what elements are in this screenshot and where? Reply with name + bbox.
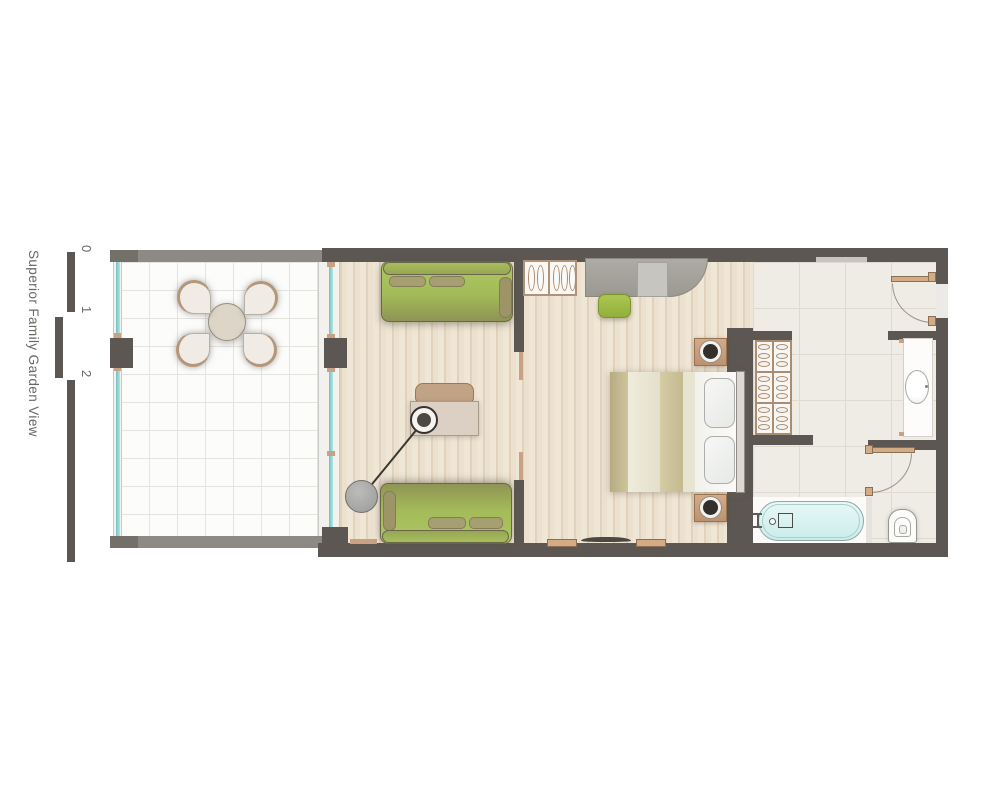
wall-above-wardrobe — [753, 331, 792, 340]
bed-blanket-stripe — [628, 372, 660, 492]
door-jamb — [928, 272, 936, 282]
counter-bracket — [899, 339, 904, 343]
towel-wardrobe-shelf — [755, 402, 792, 404]
living-door-jamb — [350, 539, 377, 544]
fan-chair-ne — [244, 281, 278, 315]
shelf-left — [547, 539, 577, 547]
tub-faucet-icon — [753, 513, 762, 515]
hanger-icon — [528, 265, 535, 291]
scale-label-2: 2 — [79, 370, 94, 377]
tub-control-icon — [778, 513, 793, 528]
fan-chair-sw — [176, 333, 210, 367]
sofa-top-armrest — [499, 277, 512, 318]
terrace-pier-left — [110, 338, 133, 368]
terrace-parapet-top — [110, 250, 326, 262]
tub-drain-icon — [769, 518, 776, 525]
headboard — [736, 371, 745, 493]
outer-wall-bottom — [318, 543, 948, 557]
sofa-bottom-cushion — [469, 517, 503, 529]
bathtub-rim — [762, 504, 860, 538]
armchair — [415, 383, 474, 403]
divider-stub-bottom — [514, 480, 524, 543]
terrace-parapet-bottom — [110, 536, 326, 548]
towel-stack — [775, 342, 789, 369]
sofa-top-backrest — [383, 262, 511, 275]
living-glass-segment — [329, 456, 333, 527]
scale-label-1: 1 — [79, 306, 94, 313]
wall-below-wardrobe — [753, 435, 813, 445]
bed-blanket-stripe — [683, 372, 695, 492]
green-stool — [598, 294, 631, 318]
bed-blanket-stripe — [610, 372, 628, 492]
tub-faucet-icon — [753, 526, 762, 528]
towel-stack — [775, 374, 789, 401]
parapet-corner-cap — [110, 250, 138, 262]
living-glass-segment — [329, 263, 333, 334]
hanger-icon — [553, 265, 560, 291]
glass-joint — [327, 451, 335, 456]
bed-blanket-stripe — [660, 372, 683, 492]
hanger-icon — [561, 265, 568, 291]
table-lamp-icon — [703, 500, 718, 515]
toilet-drain — [899, 525, 907, 534]
table-lamp-icon — [703, 344, 718, 359]
scale-bar-segment-2-5 — [67, 380, 75, 562]
divider-jamb — [519, 352, 523, 380]
towel-wardrobe-divider — [772, 340, 774, 435]
towel-wardrobe-shelf — [755, 371, 792, 373]
door-jamb — [928, 316, 936, 326]
hanger-closet-divider — [548, 260, 550, 296]
glass-joint — [327, 262, 335, 267]
hanger-icon — [537, 265, 544, 291]
towel-stack — [757, 405, 771, 432]
floor-lamp-bulb — [417, 413, 431, 427]
terrace-left-glass — [116, 262, 120, 536]
bedroom-desk-chair — [637, 262, 668, 297]
divider-jamb — [519, 452, 523, 480]
outer-wall-right-upper — [936, 248, 948, 284]
entry-opening — [936, 284, 948, 318]
hanger-icon — [569, 265, 576, 291]
terrace-floor — [121, 262, 318, 536]
terrace-pier-right — [324, 338, 347, 368]
sofa-bottom-armrest — [383, 491, 396, 531]
sofa-bottom-backrest — [382, 530, 509, 543]
sofa-bottom-cushion — [428, 517, 466, 529]
pillow — [704, 378, 735, 428]
shelf-right — [636, 539, 666, 547]
towel-stack — [757, 374, 771, 401]
scale-label-0: 0 — [79, 245, 94, 252]
fan-chair-nw — [177, 280, 211, 314]
round-table — [208, 303, 246, 341]
sofa-top-cushion — [429, 276, 465, 287]
plan-title: Superior Family Garden View — [26, 250, 41, 437]
wall-niche — [816, 257, 867, 262]
sink-tap-dot — [925, 385, 928, 388]
counter-bracket — [899, 432, 904, 436]
scale-bar-segment-0-1 — [67, 252, 75, 312]
towel-stack — [775, 405, 789, 432]
door-jamb — [865, 487, 873, 496]
fan-chair-se — [243, 333, 277, 367]
floorplan-canvas: 0 1 2 Superior Family Garden View — [0, 0, 1000, 800]
scale-bar-segment-1-2 — [55, 317, 63, 378]
outer-wall-right-lower — [936, 318, 948, 557]
wall-tv — [581, 537, 631, 542]
towel-stack — [757, 342, 771, 369]
door-jamb — [865, 445, 873, 454]
floor-lamp-base — [345, 480, 378, 513]
sofa-top-cushion — [389, 276, 426, 287]
alcove-divider — [866, 497, 872, 543]
parapet-corner-cap — [110, 536, 138, 548]
pillow — [704, 436, 735, 484]
living-glass-segment — [329, 372, 333, 452]
